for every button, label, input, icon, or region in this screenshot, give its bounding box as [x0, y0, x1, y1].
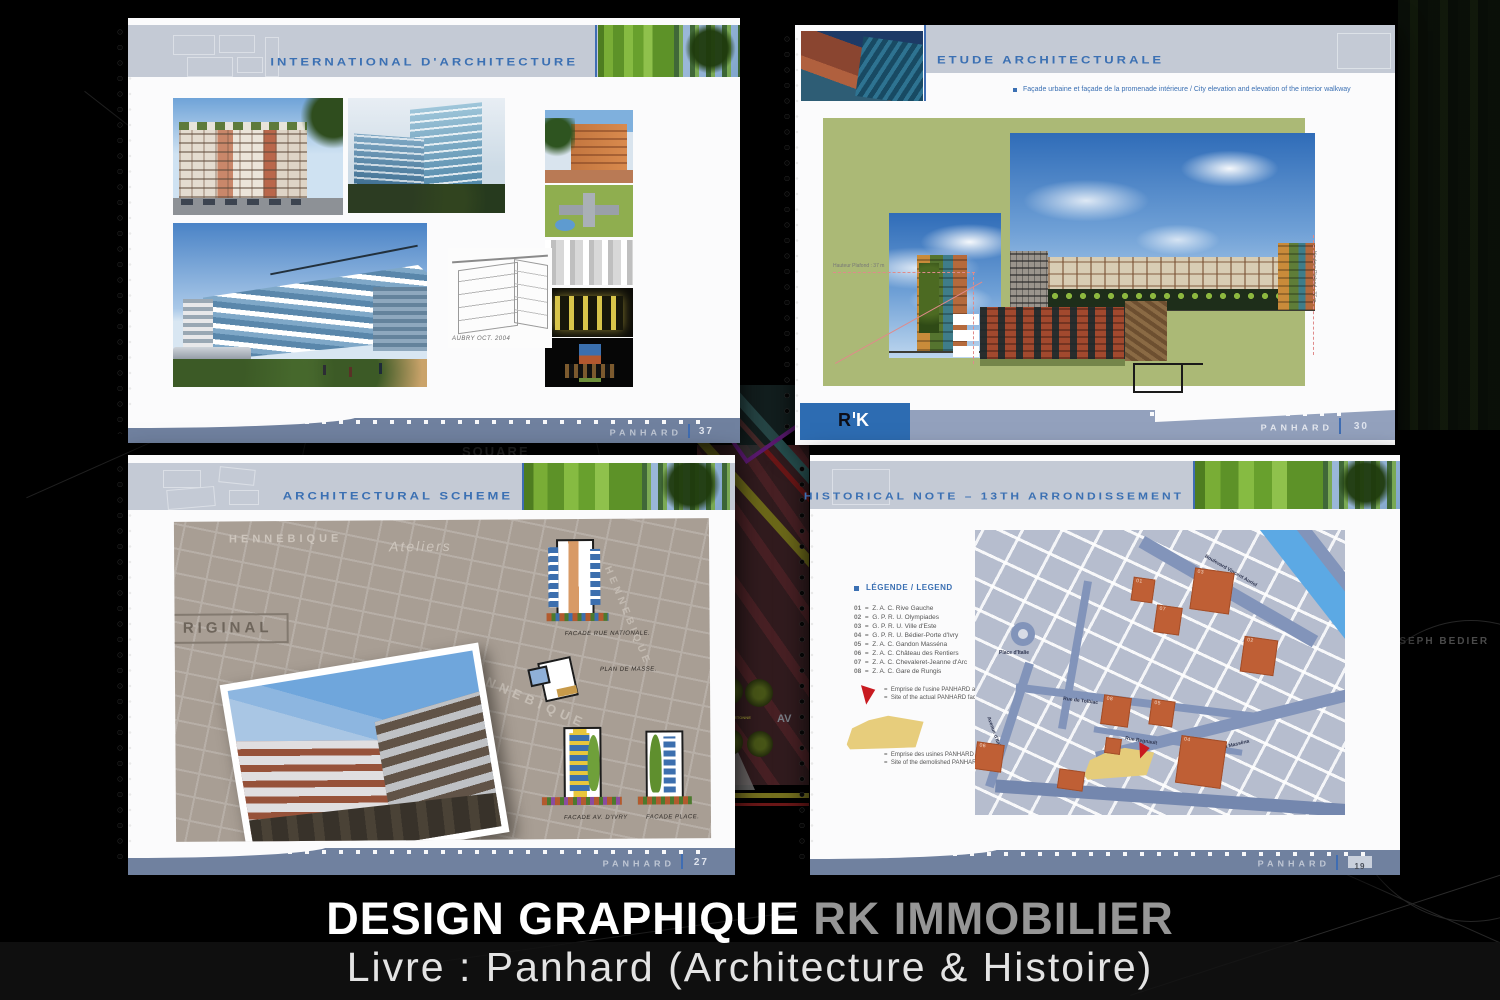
peripherique — [995, 779, 1345, 815]
legend-eq: = — [865, 623, 869, 630]
bg-plan-tree — [747, 731, 773, 757]
page4-bamboo-photo — [1323, 461, 1400, 509]
street-tree — [301, 98, 343, 158]
rock-cliff — [1125, 301, 1167, 361]
bg-bamboo-texture — [1398, 0, 1500, 430]
map-site-03: 03 — [1189, 567, 1234, 614]
page2-footer: PANHARD 30 — [910, 410, 1395, 440]
sketch-tower-nationale — [546, 539, 609, 625]
legend-eq: = — [865, 659, 869, 666]
legend-num: 01 — [854, 605, 861, 612]
legend-item: 02 = G. P. R. U. Olympiades — [854, 614, 939, 621]
sketch-tower-place — [637, 730, 692, 808]
legend-bullet — [854, 586, 859, 591]
dim-label-right: Hauteur Plafond : 37 m — [1311, 251, 1317, 302]
page1-bamboo-photo — [674, 25, 740, 77]
legend-label: G. P. R. U. Bédier-Porte d'Ivry — [872, 632, 958, 639]
map-site-06: 06 — [975, 741, 1005, 773]
legend-label: Z. A. C. Chevaleret-Jeanne d'Arc — [872, 659, 967, 666]
legend-demolished-icon — [845, 711, 925, 751]
legend-num: 03 — [854, 623, 861, 630]
page2-page-number: 30 — [1354, 421, 1369, 432]
page-international-architecture: INTERNATIONAL D'ARCHITECTURE — [128, 18, 740, 443]
legend-label: Z. A. C. Château des Rentiers — [872, 650, 958, 657]
photo-glass-office — [348, 98, 505, 213]
legend-item: 06 = Z. A. C. Château des Rentiers — [854, 650, 959, 657]
map-site-05: 05 — [1148, 698, 1175, 727]
pedestrian — [349, 367, 352, 377]
sketch-leaf — [587, 735, 599, 791]
montage-base — [565, 364, 615, 378]
thumb-orange-building — [545, 110, 633, 183]
map-site-label: 01 — [1136, 578, 1143, 585]
tower-garden — [919, 263, 939, 333]
map-site-04: 04 — [1175, 735, 1227, 789]
dim-label-left: Hauteur Plafond : 37 m — [833, 263, 884, 269]
palm-tree — [545, 118, 575, 168]
sketch-windows — [663, 736, 675, 792]
bg-plan-tree — [745, 679, 773, 707]
page1-footer-divider — [688, 424, 690, 438]
page2-footer-divider — [1339, 418, 1341, 434]
sketch-caption-2: PLAN DE MASSE. — [600, 667, 657, 673]
page2-header-band: ETUDE ARCHITECTURALE — [925, 25, 1395, 73]
aerial-building — [583, 193, 595, 227]
legend-item: 08 = Z. A. C. Gare de Rungis — [854, 668, 941, 675]
blueprint-name-top: HENNEBIQUE — [229, 533, 342, 546]
rk-logo-k: K — [856, 410, 869, 431]
glass-roof-detail — [855, 36, 923, 101]
sketch-base — [547, 613, 609, 621]
avenue-choisy — [1058, 580, 1092, 729]
page2-subtitle: Façade urbaine et façade de la promenade… — [1023, 86, 1351, 93]
page1-header-band: INTERNATIONAL D'ARCHITECTURE — [128, 25, 740, 77]
legend-eq: = — [865, 605, 869, 612]
roundabout-center — [1018, 629, 1028, 639]
page4-plant-photo — [1195, 461, 1323, 509]
label-boxes — [953, 311, 979, 357]
sketch-tower-ivry — [553, 727, 614, 809]
thumb-aerial-green-site — [545, 185, 633, 237]
map-site-label: 03 — [1197, 569, 1204, 576]
page-architectural-scheme: ARCHITECTURAL SCHEME HENNEBIQUE Ateliers… — [128, 455, 735, 875]
street-label-place-italie: Place d'Italie — [999, 650, 1029, 656]
place-italie-roundabout — [1011, 622, 1035, 646]
rue-tolbiac — [1015, 683, 1254, 720]
page3-bamboo-photo — [642, 463, 730, 510]
page1-plant-photo — [598, 25, 674, 77]
section-outline — [1133, 363, 1183, 393]
elevation-city-sky — [1010, 133, 1315, 311]
factory-photo-image — [228, 650, 502, 841]
legend-label: Z. A. C. Gare de Rungis — [872, 668, 941, 675]
caption-title-white: DESIGN GRAPHIQUE — [326, 893, 800, 944]
legend-item: 01 = Z. A. C. Rive Gauche — [854, 605, 933, 612]
section-rule — [1133, 363, 1203, 365]
page3-footer-brand: PANHARD — [603, 860, 675, 869]
map-site-extra — [1104, 737, 1122, 755]
foreground-trees — [348, 184, 505, 213]
legend-num: 02 — [854, 614, 861, 621]
sketch-note: AUBRY OCT. 2004 — [452, 336, 510, 342]
page4-title: HISTORICAL NOTE – 13TH ARRONDISSEMENT — [804, 490, 1184, 502]
page1-header-divider — [595, 25, 597, 77]
rk-logo-box: R K — [800, 403, 910, 440]
legend-label: Z. A. C. Gandon Masséna — [872, 641, 947, 648]
legend-eq: = — [865, 614, 869, 621]
page4-page-number: 19 — [1355, 862, 1366, 871]
poster-canvas: SQUARE JOSEPH BEDIER PRINCIPAUX PIETONNE… — [0, 0, 1500, 1000]
orange-facade — [571, 124, 627, 172]
page3-title: ARCHITECTURAL SCHEME — [283, 489, 513, 502]
legend-eq: = — [865, 641, 869, 648]
pencil-sketch: AUBRY OCT. 2004 — [448, 248, 552, 348]
page1-title: INTERNATIONAL D'ARCHITECTURE — [270, 55, 578, 68]
map-site-07: 07 — [1153, 604, 1183, 635]
page4-footer-brand: PANHARD — [1258, 860, 1330, 869]
map-site-label: 08 — [1106, 696, 1113, 703]
parked-cars — [181, 199, 301, 205]
dim-line-h — [833, 272, 975, 273]
sketch-facade-left — [458, 262, 518, 334]
residential-facade — [179, 128, 307, 198]
legend-actual-en: = Site of the actual PANHARD factory — [884, 695, 986, 701]
residential-roof-garden — [179, 122, 307, 130]
map-site-label: 06 — [979, 743, 986, 750]
dim-line-v2 — [1313, 235, 1314, 355]
photo-residential-buildings — [173, 98, 343, 215]
original-stamp: RIGINAL — [174, 613, 289, 644]
arrondissement-map: Place d'Italie Boulevard Vincent Auriol … — [975, 530, 1345, 815]
sketch-plan-masse — [527, 657, 585, 705]
page3-header-band: ARCHITECTURAL SCHEME — [128, 463, 735, 510]
caption-title: DESIGN GRAPHIQUE RK IMMOBILIER — [0, 893, 1500, 945]
render-office-slab — [173, 223, 427, 387]
legend-item: 07 = Z. A. C. Chevaleret-Jeanne d'Arc — [854, 659, 967, 666]
page2-header-divider — [924, 25, 926, 101]
subtitle-bullet — [1013, 88, 1017, 92]
page2-footer-brand: PANHARD — [1261, 424, 1333, 433]
map-site-label: 02 — [1247, 637, 1254, 644]
sketch-caption-3: FACADE AV. D'IVRY — [564, 815, 628, 821]
sketch-base — [638, 796, 692, 804]
page4-header-band: HISTORICAL NOTE – 13TH ARRONDISSEMENT — [810, 461, 1400, 509]
ground-strip — [980, 359, 1125, 366]
legend-eq: = — [865, 668, 869, 675]
thumb-night-lobby — [545, 288, 633, 337]
page2-header-thumbnail — [1337, 33, 1391, 69]
spiral-binding — [795, 461, 819, 867]
sketch-caption-1: FACADE RUE NATIONALE. — [565, 631, 651, 638]
page3-footer-divider — [681, 854, 683, 869]
lit-pillars — [555, 296, 623, 330]
map-site-label: 07 — [1159, 606, 1166, 613]
legend-num: 04 — [854, 632, 861, 639]
map-site-label: 04 — [1184, 736, 1191, 743]
page2-title: ETUDE ARCHITECTURALE — [937, 53, 1164, 66]
legend-num: 08 — [854, 668, 861, 675]
page-historical-note: HISTORICAL NOTE – 13TH ARRONDISSEMENT LÉ… — [810, 455, 1400, 875]
legend-title: LÉGENDE / LEGEND — [866, 583, 953, 592]
page1-page-number: 37 — [699, 426, 714, 437]
legend-label: G. P. R. U. Ville d'Este — [872, 623, 936, 630]
page3-title-wrap: ARCHITECTURAL SCHEME — [283, 487, 513, 505]
blueprint-script: Ateliers — [389, 538, 452, 554]
sketch-body — [556, 539, 595, 617]
page-etude-architecturale: ETUDE ARCHITECTURALE Façade urbaine et f… — [795, 25, 1395, 445]
caption-subtitle: Livre : Panhard (Architecture & Histoire… — [0, 944, 1500, 991]
plaza-ground — [545, 170, 633, 183]
map-site-08: 08 — [1100, 694, 1132, 728]
glass-wing — [354, 134, 424, 191]
legend-eq: = — [865, 650, 869, 657]
legend-item: 05 = Z. A. C. Gandon Masséna — [854, 641, 947, 648]
haussmann-block — [1010, 251, 1048, 311]
spiral-binding — [113, 461, 137, 867]
page4-footer-divider — [1336, 855, 1338, 870]
landscaping — [173, 359, 427, 387]
side-building — [373, 287, 427, 351]
brick-facade — [980, 307, 1125, 359]
sketch-windows — [590, 549, 600, 605]
legend-eq: = — [865, 632, 869, 639]
sketch-leaf — [649, 734, 661, 792]
caption-title-gray: RK IMMOBILIER — [813, 893, 1173, 944]
pedestrian — [323, 365, 326, 375]
page4-page-number-box: 19 — [1348, 856, 1372, 868]
rk-logo-r: R — [838, 410, 851, 431]
page1-title-wrap: INTERNATIONAL D'ARCHITECTURE — [270, 53, 578, 71]
map-site-02: 02 — [1240, 636, 1279, 676]
sketch-windows — [548, 547, 558, 607]
thumb-night-tower — [545, 338, 633, 387]
map-site-01: 01 — [1130, 577, 1155, 604]
page2-header-photo — [801, 31, 923, 101]
legend-num: 05 — [854, 641, 861, 648]
legend-item: 04 = G. P. R. U. Bédier-Porte d'Ivry — [854, 632, 958, 639]
original-stamp-text: RIGINAL — [183, 619, 273, 637]
sketch-base — [542, 797, 622, 806]
legend-label: Z. A. C. Rive Gauche — [872, 605, 933, 612]
page1-footer-brand: PANHARD — [610, 429, 682, 438]
page4-title-wrap: HISTORICAL NOTE – 13TH ARRONDISSEMENT — [804, 487, 1184, 505]
legend-num: 07 — [854, 659, 861, 666]
sketch-facade-right — [514, 259, 548, 329]
sketch-caption-4: FACADE PLACE. — [646, 814, 699, 820]
page3-plant-photo — [524, 463, 642, 510]
color-tower-right — [1278, 243, 1315, 311]
page3-page-number: 27 — [694, 857, 709, 868]
map-site-label: 05 — [1154, 700, 1161, 707]
aerial-pond — [555, 219, 575, 231]
pedestrian — [379, 363, 382, 374]
legend-num: 06 — [854, 650, 861, 657]
map-site-extra — [1057, 768, 1086, 791]
legend-item: 03 = G. P. R. U. Ville d'Este — [854, 623, 937, 630]
bg-label-av: AV — [777, 713, 791, 725]
page2-title-wrap: ETUDE ARCHITECTURALE — [937, 51, 1164, 69]
spiral-binding — [113, 24, 137, 434]
thumb-aerial-grey — [545, 240, 633, 285]
blueprint-collage: HENNEBIQUE Ateliers HENNEBIQUE HENNEBIQU… — [174, 518, 711, 842]
legend-actual-icon — [856, 685, 876, 706]
legend-label: G. P. R. U. Olympiades — [872, 614, 939, 621]
rk-logo-dot — [853, 412, 855, 418]
